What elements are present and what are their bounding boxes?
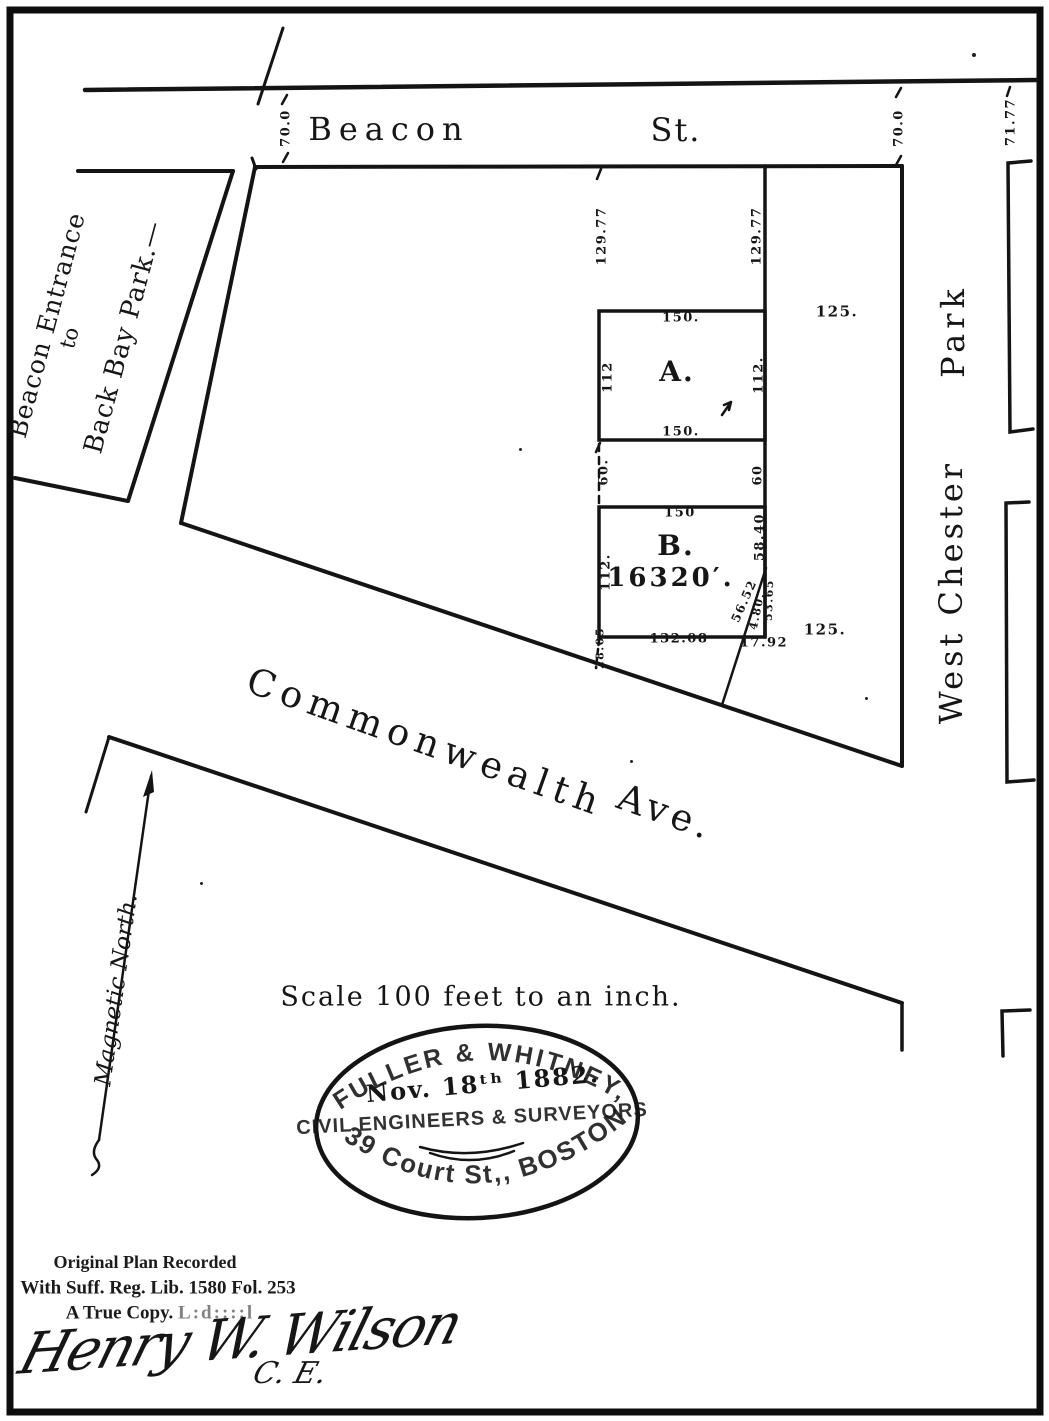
parcel-b-area: 16320′. [607,565,734,591]
scan-speck [865,697,868,700]
dim-b-left: 112. [600,553,613,591]
tick [1007,87,1010,96]
parcel-b-label: B. [657,532,694,560]
dim-park-width: 71.77 [1005,98,1018,146]
magnetic-north-arrowhead-icon [143,770,154,797]
commonwealth-south-left-stub [86,737,109,812]
street-label-beacon-suffix: St. [651,114,702,146]
beacon-south-line [255,166,902,167]
street-label-beacon: Beacon [308,113,469,145]
dim-depth-right: 129.77 [751,207,764,266]
dim-beacon-width-right: 70.0 [893,109,906,147]
tick [282,95,287,104]
dim-a-left: 112 [602,361,615,393]
dim-b-bottom-main: 132.08 [650,633,709,646]
scan-speck [519,448,522,451]
park-east-bracket-bottom [1002,1010,1030,1056]
parcel-a-label: A. [659,358,694,386]
pen-arrow-icon [722,402,731,415]
scan-speck [972,53,976,57]
dim-a-top: 150. [662,312,700,325]
dim-depth-left: 129.77 [596,207,609,266]
stamp-flourish [420,1143,523,1153]
scan-speck [200,882,203,885]
magnetic-north-tail [92,1140,99,1175]
dim-b-stub: 28.05 [595,627,606,669]
dim-b-right-upper: 58.40 [754,513,767,561]
park-east-bracket-top [1008,161,1033,432]
tick [597,169,601,179]
beacon-north-line [85,80,1036,90]
dim-east-lot-top: 125. [816,305,859,320]
street-label-west-chester: West Chester [935,460,967,724]
dim-a-bottom: 150. [662,426,700,439]
dim-b-top: 150 [664,507,696,520]
scale-note: Scale 100 feet to an inch. [280,984,681,1011]
dim-gap-right: 60 [752,464,765,485]
recording-line2: With Suff. Reg. Lib. 1580 Fol. 253 [20,1279,295,1298]
dim-gap-left: 60. [598,458,611,485]
plan-border [10,10,1040,1412]
signature-title: C. E. [250,1359,330,1389]
dim-east-lot-bottom: 125. [804,623,847,638]
boundary-tick [258,28,283,104]
tick [283,153,288,162]
tick [896,88,901,97]
dim-beacon-width-left: 70.0 [280,109,293,147]
survey-plan-page: FULLER & WHITNEY, 39 Court St,, BOSTON. … [0,0,1049,1421]
recording-line1: Original Plan Recorded [54,1253,237,1271]
tick [896,156,901,165]
dim-b-bottom-right: 17.92 [740,637,788,650]
plan-linework: FULLER & WHITNEY, 39 Court St,, BOSTON. [0,0,1049,1421]
park-east-bracket-mid [1006,502,1034,782]
commonwealth-north-line [181,523,902,766]
street-label-park: Park [937,284,969,378]
dim-a-right: 112. [753,356,766,394]
block-corner-jog [252,158,256,169]
park-entrance-south-edge [15,478,128,501]
dim-b-right-lower: 53.65 [763,579,775,621]
scan-speck [630,760,633,763]
